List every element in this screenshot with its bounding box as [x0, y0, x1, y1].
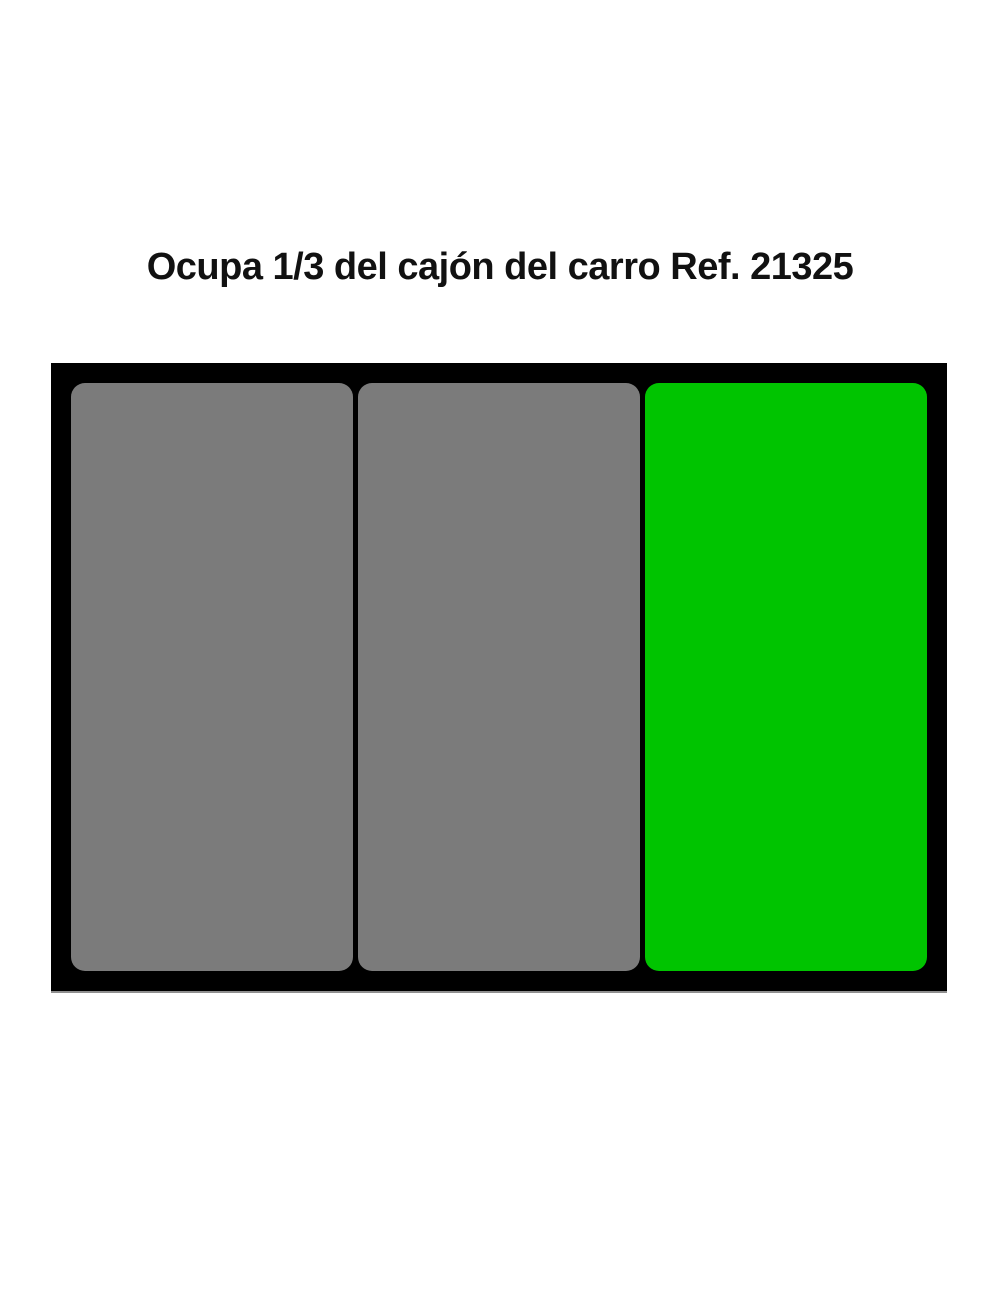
page-title: Ocupa 1/3 del cajón del carro Ref. 21325 — [0, 241, 1000, 293]
drawer-frame — [51, 363, 947, 991]
drawer-slot-3-highlighted — [645, 383, 927, 971]
drawer-slot-1 — [71, 383, 353, 971]
drawer-slot-2 — [358, 383, 640, 971]
